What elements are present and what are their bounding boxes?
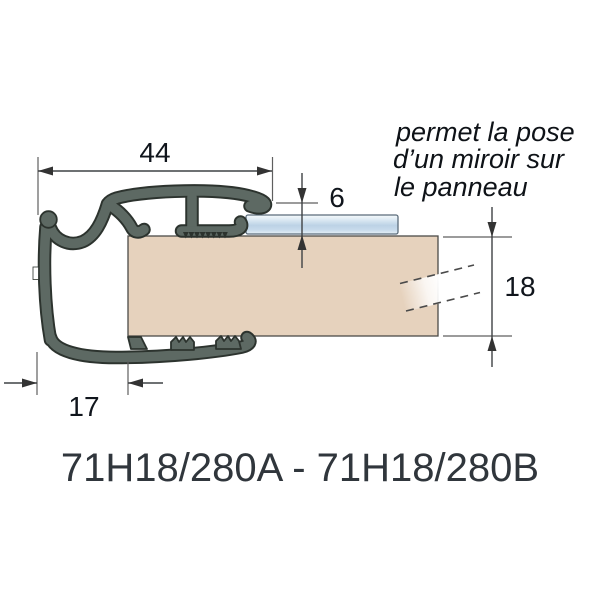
dim-44-arrow-right — [257, 167, 272, 176]
panel — [128, 236, 438, 336]
dimension-44: 44 — [38, 137, 273, 215]
profile-grip-comb-a — [171, 337, 194, 350]
annotation-line-2: d’un miroir sur — [393, 144, 565, 174]
technical-diagram: 44 6 18 17 permet la pose d’un miroir su… — [0, 0, 600, 600]
dim-44-arrow-left — [38, 167, 53, 176]
profile-wall-notch — [33, 267, 39, 280]
mirror-strip — [246, 215, 398, 234]
dim-18-arrow-up — [488, 336, 497, 351]
annotation-text: permet la pose d’un miroir sur le pannea… — [393, 117, 575, 202]
dim-18-arrow-down — [488, 222, 497, 237]
dim-18-label: 18 — [504, 271, 535, 302]
dim-44-label: 44 — [139, 137, 170, 168]
profile-grip-tab — [128, 337, 147, 349]
dim-6-arrow-down — [298, 188, 307, 203]
profile-grip-comb-b — [216, 336, 241, 349]
dim-17-label: 17 — [68, 391, 99, 422]
product-code: 71H18/280A - 71H18/280B — [61, 446, 539, 490]
dim-6-label: 6 — [329, 182, 345, 213]
annotation-line-3: le panneau — [394, 172, 528, 202]
dim-17-arrow-left — [128, 379, 143, 388]
annotation-line-1: permet la pose — [395, 117, 575, 147]
catalog-figure: 44 6 18 17 permet la pose d’un miroir su… — [0, 0, 600, 600]
dim-17-arrow-right — [22, 379, 37, 388]
profile-knob — [40, 211, 57, 228]
